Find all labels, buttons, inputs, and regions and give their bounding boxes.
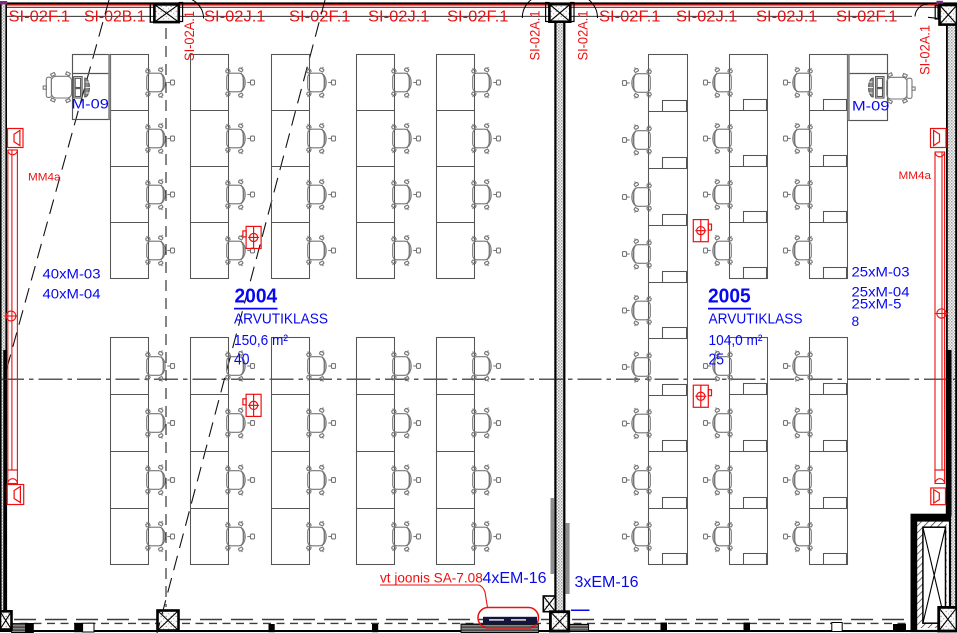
svg-text:SI-02J.1: SI-02J.1 [676,9,738,26]
svg-text:3xEM-16: 3xEM-16 [575,574,639,591]
svg-text:SI-02A.1: SI-02A.1 [576,11,591,61]
svg-text:SI-02F.1: SI-02F.1 [599,9,661,26]
svg-text:ARVUTIKLASS: ARVUTIKLASS [234,311,328,328]
svg-text:25xM-5: 25xM-5 [852,296,902,311]
svg-text:SI-02J.1: SI-02J.1 [756,9,818,26]
svg-text:150,6 m²: 150,6 m² [234,332,288,349]
svg-text:25xM-03: 25xM-03 [852,265,910,280]
svg-text:SI-02A.1: SI-02A.1 [917,25,932,75]
svg-text:SI-02J.1: SI-02J.1 [368,9,430,26]
svg-text:2005: 2005 [708,285,751,308]
svg-text:40xM-03: 40xM-03 [43,267,101,282]
svg-text:SI-02J.1: SI-02J.1 [204,9,266,26]
svg-text:SI-02F.1: SI-02F.1 [9,9,71,26]
svg-text:MM4a: MM4a [899,170,932,182]
svg-text:M-09: M-09 [852,99,889,114]
svg-text:2004: 2004 [235,285,278,308]
svg-text:4xEM-16: 4xEM-16 [483,570,547,587]
svg-text:MM4a: MM4a [28,172,61,184]
svg-text:40: 40 [234,352,250,369]
svg-text:SI-02B.1: SI-02B.1 [84,9,146,26]
svg-text:SI-02F.1: SI-02F.1 [289,9,351,26]
svg-text:M-09: M-09 [72,96,109,111]
svg-text:ARVUTIKLASS: ARVUTIKLASS [709,311,803,328]
svg-text:vt joonis SA-7.08: vt joonis SA-7.08 [380,571,483,586]
svg-text:8: 8 [852,314,860,329]
svg-text:104,0 m²: 104,0 m² [709,332,763,349]
svg-text:SI-02F.1: SI-02F.1 [447,9,509,26]
svg-text:40xM-04: 40xM-04 [43,287,101,302]
svg-text:25: 25 [709,352,725,369]
svg-text:SI-02A.1: SI-02A.1 [182,11,197,61]
svg-text:SI-02A.1: SI-02A.1 [528,11,543,61]
svg-text:SI-02F.1: SI-02F.1 [836,9,898,26]
